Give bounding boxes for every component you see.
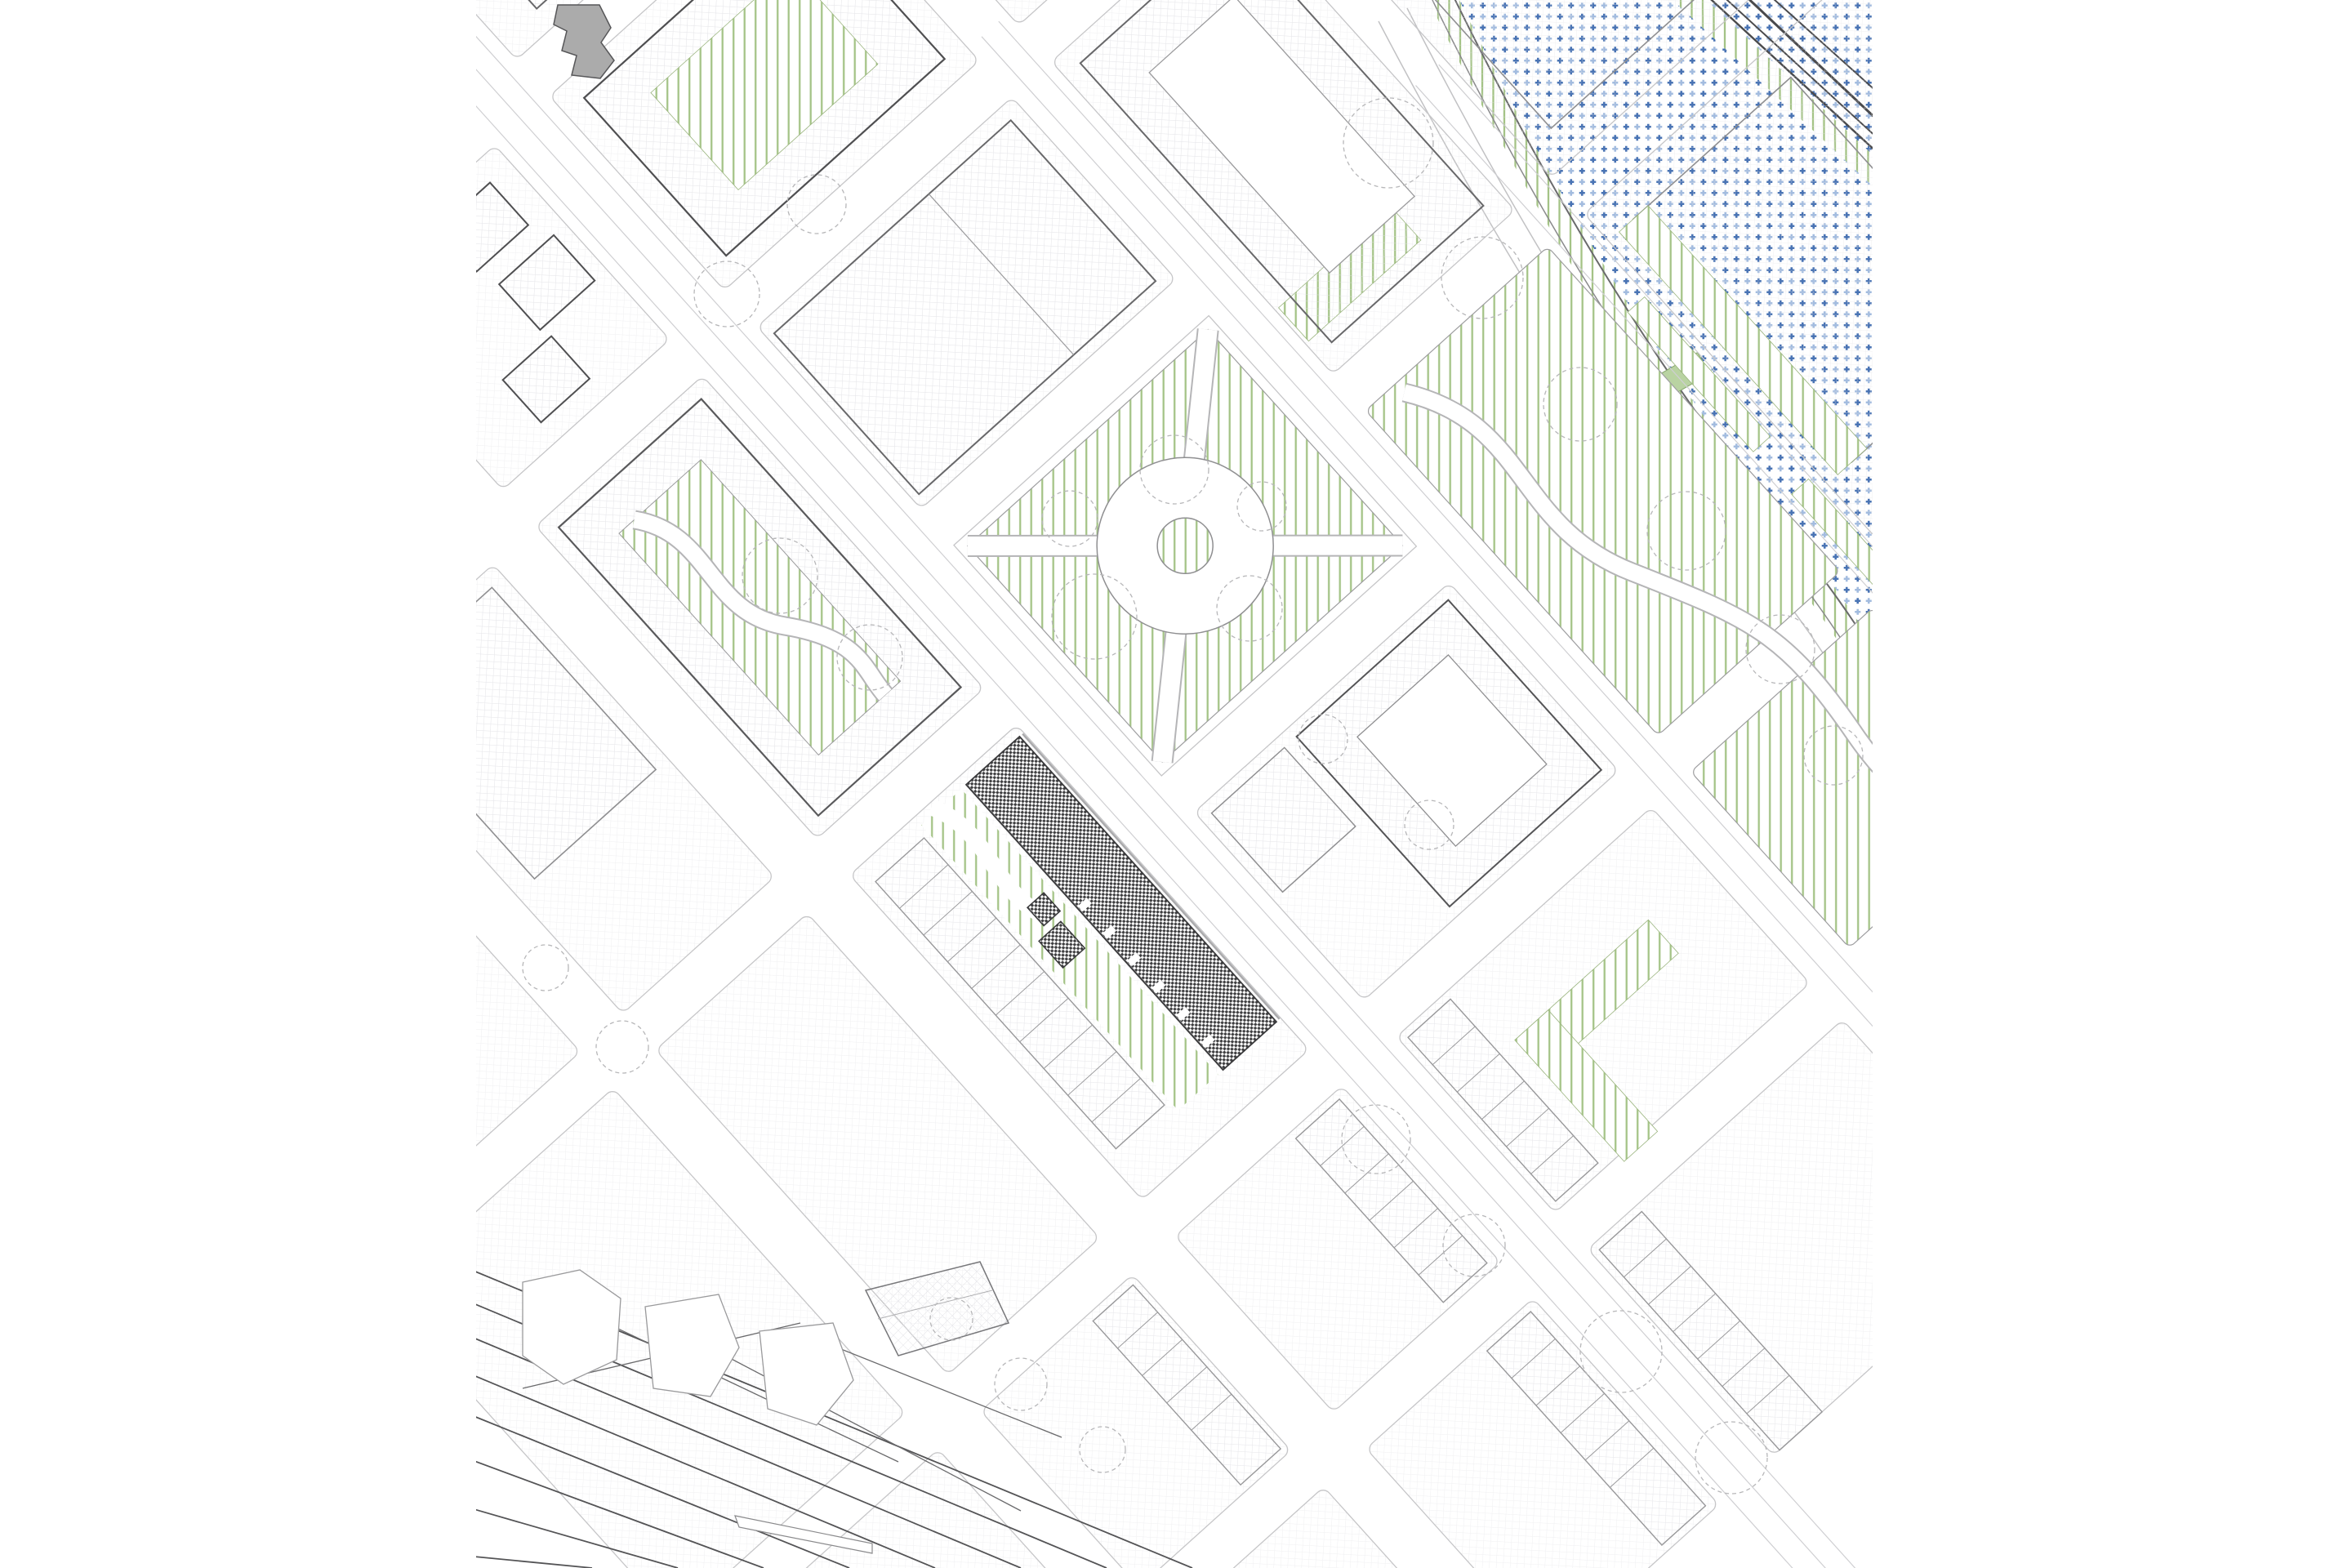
site-plan — [0, 0, 2352, 1568]
site-plan-sheet — [0, 0, 2352, 1568]
